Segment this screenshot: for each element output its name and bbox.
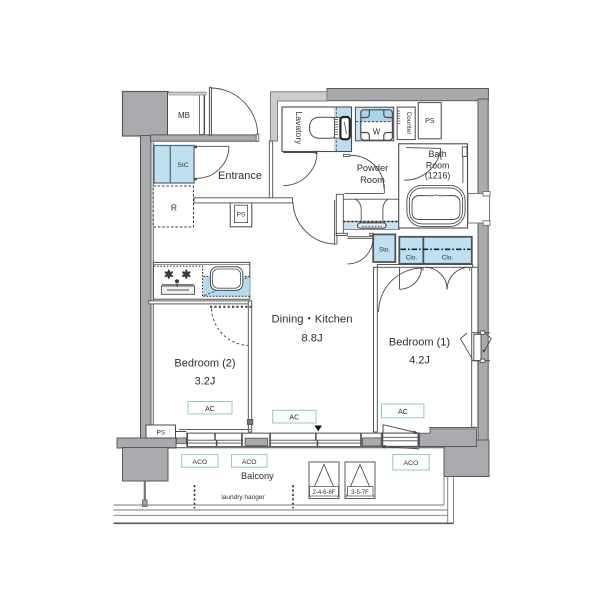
- svg-text:Bath: Bath: [429, 149, 447, 159]
- svg-text:R: R: [171, 203, 177, 213]
- svg-text:ACO: ACO: [242, 459, 257, 466]
- svg-text:3-5-7F: 3-5-7F: [351, 490, 369, 496]
- svg-text:2-4-6-8F: 2-4-6-8F: [312, 490, 335, 496]
- svg-text:Clo.: Clo.: [406, 254, 418, 261]
- svg-text:Bedroom (1): Bedroom (1): [389, 337, 450, 349]
- svg-text:SIC: SIC: [177, 162, 188, 169]
- svg-text:Bedroom (2): Bedroom (2): [174, 358, 235, 370]
- svg-text:Clo.: Clo.: [442, 254, 454, 261]
- svg-text:MB: MB: [178, 111, 190, 120]
- svg-text:PS: PS: [236, 212, 246, 219]
- svg-text:Powder: Powder: [357, 163, 389, 173]
- svg-text:Lavatory: Lavatory: [294, 112, 304, 146]
- svg-text:PS: PS: [156, 430, 165, 437]
- svg-text:AC: AC: [289, 415, 299, 422]
- svg-text:8.8J: 8.8J: [301, 333, 322, 345]
- svg-text:Dining・Kitchen: Dining・Kitchen: [271, 314, 352, 326]
- svg-text:laundry hanger: laundry hanger: [221, 494, 265, 501]
- svg-text:Sto.: Sto.: [379, 247, 391, 254]
- svg-text:ACO: ACO: [404, 460, 419, 467]
- svg-text:Counter: Counter: [405, 112, 412, 136]
- svg-text:W: W: [373, 128, 381, 137]
- svg-text:PS: PS: [425, 116, 435, 125]
- svg-text:Room: Room: [426, 161, 449, 171]
- svg-text:(1216): (1216): [425, 171, 450, 181]
- svg-text:Entrance: Entrance: [218, 170, 262, 182]
- svg-text:4.2J: 4.2J: [409, 355, 430, 367]
- svg-text:AC: AC: [398, 409, 408, 416]
- svg-text:Balcony: Balcony: [241, 471, 274, 481]
- svg-text:3.2J: 3.2J: [195, 376, 216, 388]
- svg-text:AC: AC: [205, 406, 215, 413]
- svg-text:ACO: ACO: [193, 459, 208, 466]
